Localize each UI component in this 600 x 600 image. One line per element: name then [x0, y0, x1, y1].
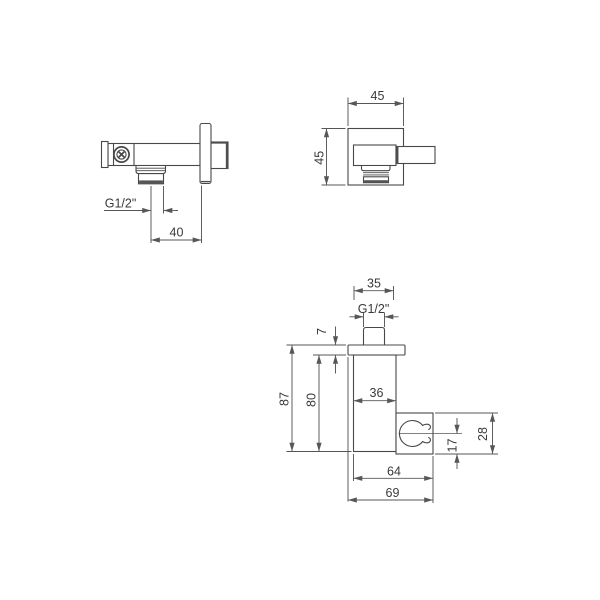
technical-drawing: G1/2" 40 45 45	[0, 0, 600, 600]
dim-label-87: 87	[278, 392, 292, 406]
dim-label-45-width: 45	[371, 89, 385, 103]
dim-label-outlet-thread: G1/2"	[105, 197, 137, 211]
outlet-front-geometry	[348, 129, 435, 186]
dim-label-69: 69	[386, 486, 400, 500]
dim-label-35: 35	[367, 277, 381, 291]
dim-label-45-height: 45	[313, 151, 327, 165]
wall-connector-block	[211, 142, 228, 169]
dim-label-80: 80	[305, 393, 319, 407]
dim-label-holder-thread: G1/2"	[358, 302, 390, 316]
outlet-side-view: G1/2" 40	[102, 124, 229, 244]
dim-label-7: 7	[315, 328, 329, 335]
dim-label-40: 40	[170, 226, 184, 240]
dim-label-28: 28	[476, 427, 490, 441]
dim-label-36: 36	[370, 386, 384, 400]
outlet-side-geometry	[102, 124, 229, 184]
thread-nipple	[364, 328, 385, 346]
outlet-end-cap	[102, 142, 109, 168]
technical-drawing-page: G1/2" 40 45 45	[0, 0, 600, 600]
body-front	[354, 145, 397, 166]
holder-body-column	[354, 355, 397, 452]
wall-flange	[200, 124, 211, 184]
wall-flange-plate	[348, 345, 405, 355]
body-handle-front	[396, 147, 435, 164]
dim-label-64: 64	[387, 465, 401, 479]
outlet-side-dimensions	[104, 186, 202, 244]
outlet-thread-spout	[136, 166, 166, 184]
holder-side-view: 35 G1/2" 7 87 80 36 17 28 64 69	[278, 277, 499, 504]
dim-label-17: 17	[446, 439, 460, 453]
outlet-front-view: 45 45	[313, 89, 436, 185]
holder-side-geometry	[348, 328, 433, 455]
